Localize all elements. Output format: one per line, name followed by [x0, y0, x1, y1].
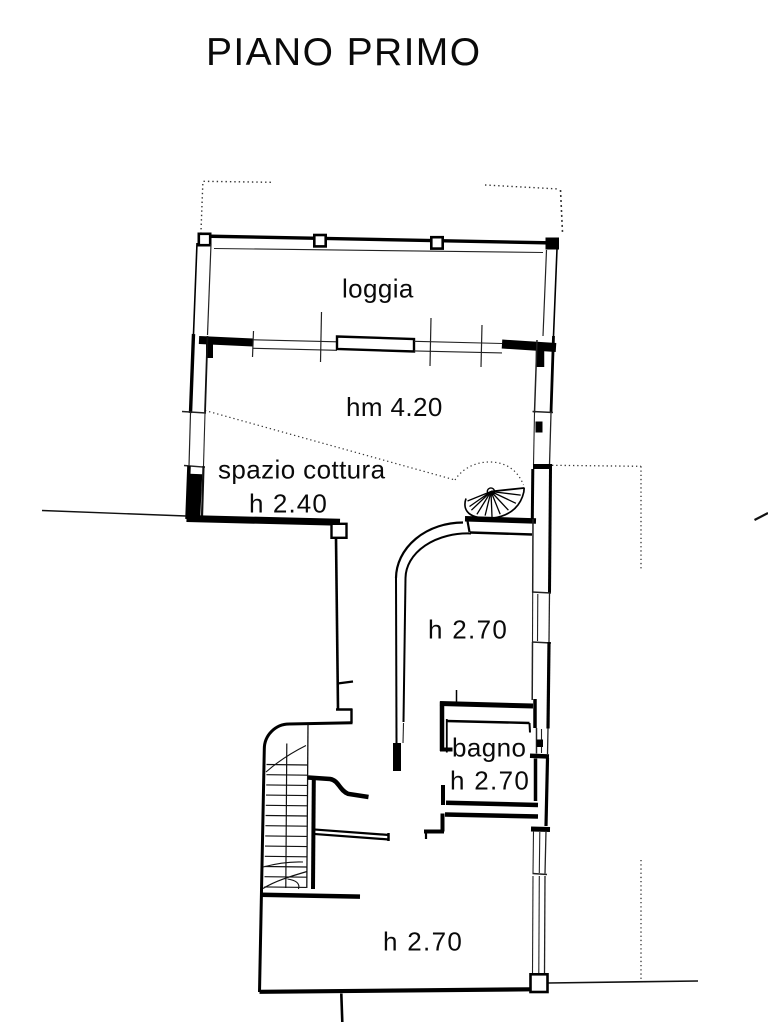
- svg-text:h 2.70: h 2.70: [428, 615, 508, 645]
- svg-text:bagno: bagno: [452, 733, 526, 763]
- svg-text:h 2.70: h 2.70: [450, 766, 530, 796]
- svg-text:h 2.40: h 2.40: [249, 489, 328, 519]
- svg-text:h 2.70: h 2.70: [383, 927, 463, 957]
- svg-text:hm 4.20: hm 4.20: [346, 392, 443, 422]
- svg-text:PIANO PRIMO: PIANO PRIMO: [206, 31, 481, 74]
- svg-text:loggia: loggia: [342, 274, 414, 304]
- svg-text:spazio cottura: spazio cottura: [218, 455, 386, 485]
